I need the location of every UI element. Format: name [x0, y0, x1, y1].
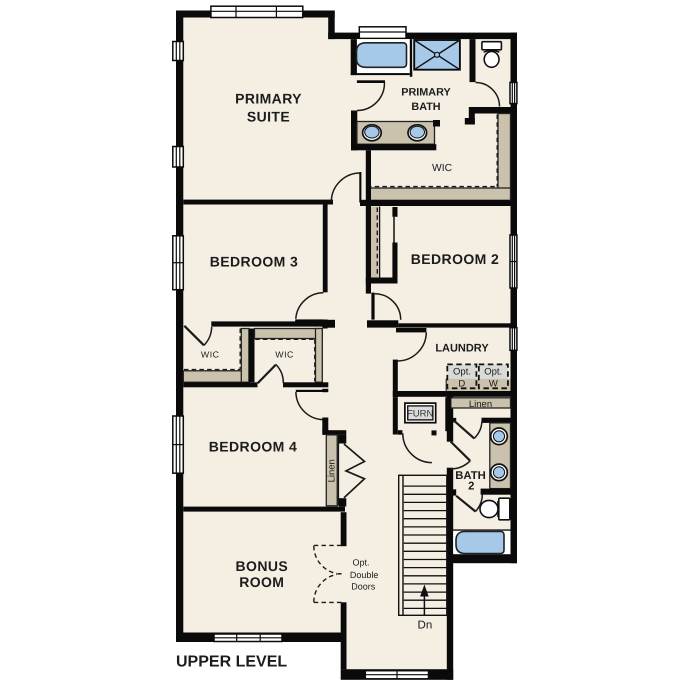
- svg-text:Opt.: Opt.: [453, 367, 471, 378]
- svg-text:FURN: FURN: [407, 408, 434, 419]
- svg-text:Double: Double: [350, 570, 379, 580]
- svg-text:Opt.: Opt.: [352, 558, 369, 568]
- svg-text:BEDROOM 3: BEDROOM 3: [210, 254, 298, 270]
- svg-text:BEDROOM 2: BEDROOM 2: [411, 251, 499, 267]
- svg-text:WIC: WIC: [201, 350, 220, 360]
- svg-text:BATH: BATH: [411, 101, 440, 113]
- svg-text:BONUS: BONUS: [236, 558, 289, 574]
- svg-text:BEDROOM 4: BEDROOM 4: [209, 439, 297, 455]
- svg-text:SUITE: SUITE: [247, 109, 290, 125]
- svg-text:UPPER LEVEL: UPPER LEVEL: [176, 654, 287, 671]
- svg-text:D: D: [458, 379, 465, 390]
- svg-text:PRIMARY: PRIMARY: [401, 87, 451, 99]
- svg-text:Linen: Linen: [327, 459, 338, 482]
- svg-text:2: 2: [468, 481, 474, 493]
- svg-text:Linen: Linen: [469, 399, 492, 410]
- svg-text:W: W: [489, 379, 498, 390]
- svg-text:Opt.: Opt.: [484, 367, 502, 378]
- svg-text:LAUNDRY: LAUNDRY: [435, 342, 489, 354]
- svg-text:Doors: Doors: [351, 581, 376, 591]
- svg-text:ROOM: ROOM: [239, 574, 284, 590]
- svg-text:WIC: WIC: [432, 163, 453, 174]
- svg-text:Dn: Dn: [418, 619, 433, 631]
- svg-text:PRIMARY: PRIMARY: [235, 91, 302, 107]
- svg-text:WIC: WIC: [275, 349, 294, 359]
